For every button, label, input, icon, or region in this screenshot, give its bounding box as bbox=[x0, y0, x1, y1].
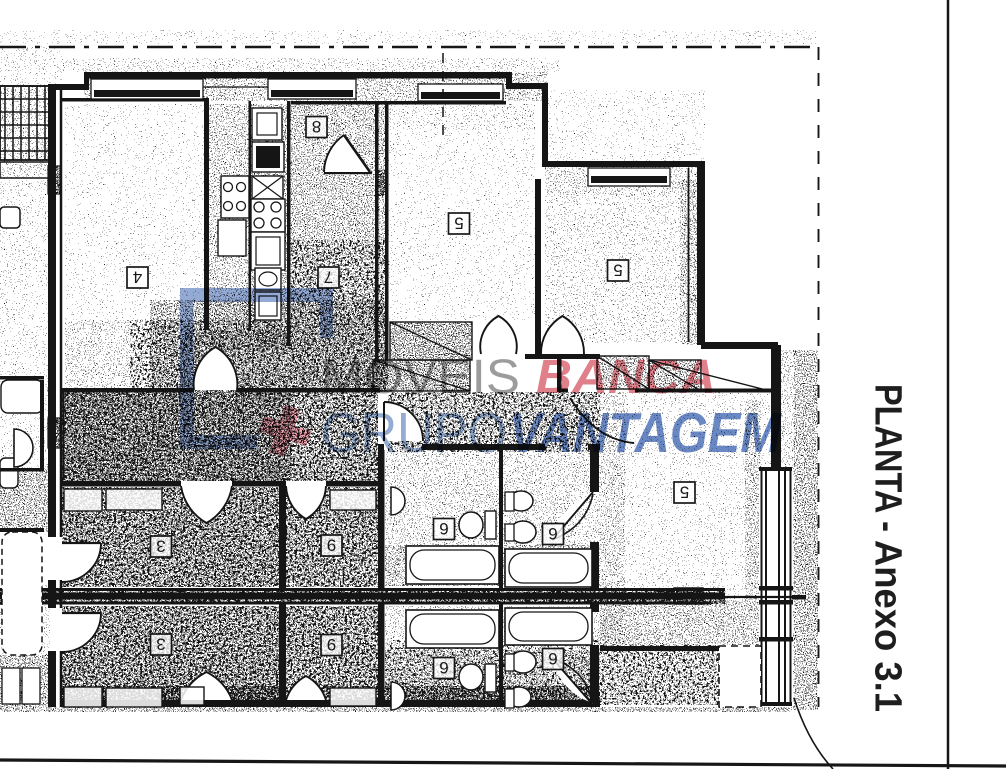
svg-text:9: 9 bbox=[327, 536, 336, 555]
svg-text:BANCA: BANCA bbox=[536, 351, 716, 404]
svg-text:7: 7 bbox=[324, 268, 333, 287]
svg-text:4: 4 bbox=[133, 268, 142, 287]
svg-text:8: 8 bbox=[312, 117, 321, 136]
svg-text:3: 3 bbox=[156, 635, 165, 654]
svg-text:Anexo 3.1: Anexo 3.1 bbox=[867, 540, 909, 712]
svg-text:9: 9 bbox=[327, 635, 336, 654]
svg-text:GRUPO: GRUPO bbox=[321, 401, 507, 465]
svg-text:5: 5 bbox=[613, 261, 622, 280]
svg-text:5: 5 bbox=[680, 483, 689, 502]
svg-text:6: 6 bbox=[439, 519, 448, 538]
svg-text:6: 6 bbox=[548, 649, 557, 668]
svg-text:5: 5 bbox=[454, 214, 463, 233]
svg-text:VANTAGEM: VANTAGEM bbox=[509, 401, 782, 465]
svg-text:6: 6 bbox=[548, 524, 557, 543]
svg-text:PLANTA -: PLANTA - bbox=[867, 384, 909, 532]
svg-text:3: 3 bbox=[156, 537, 165, 556]
svg-text:MÓVEIS: MÓVEIS bbox=[321, 350, 520, 404]
svg-text:6: 6 bbox=[439, 658, 448, 677]
